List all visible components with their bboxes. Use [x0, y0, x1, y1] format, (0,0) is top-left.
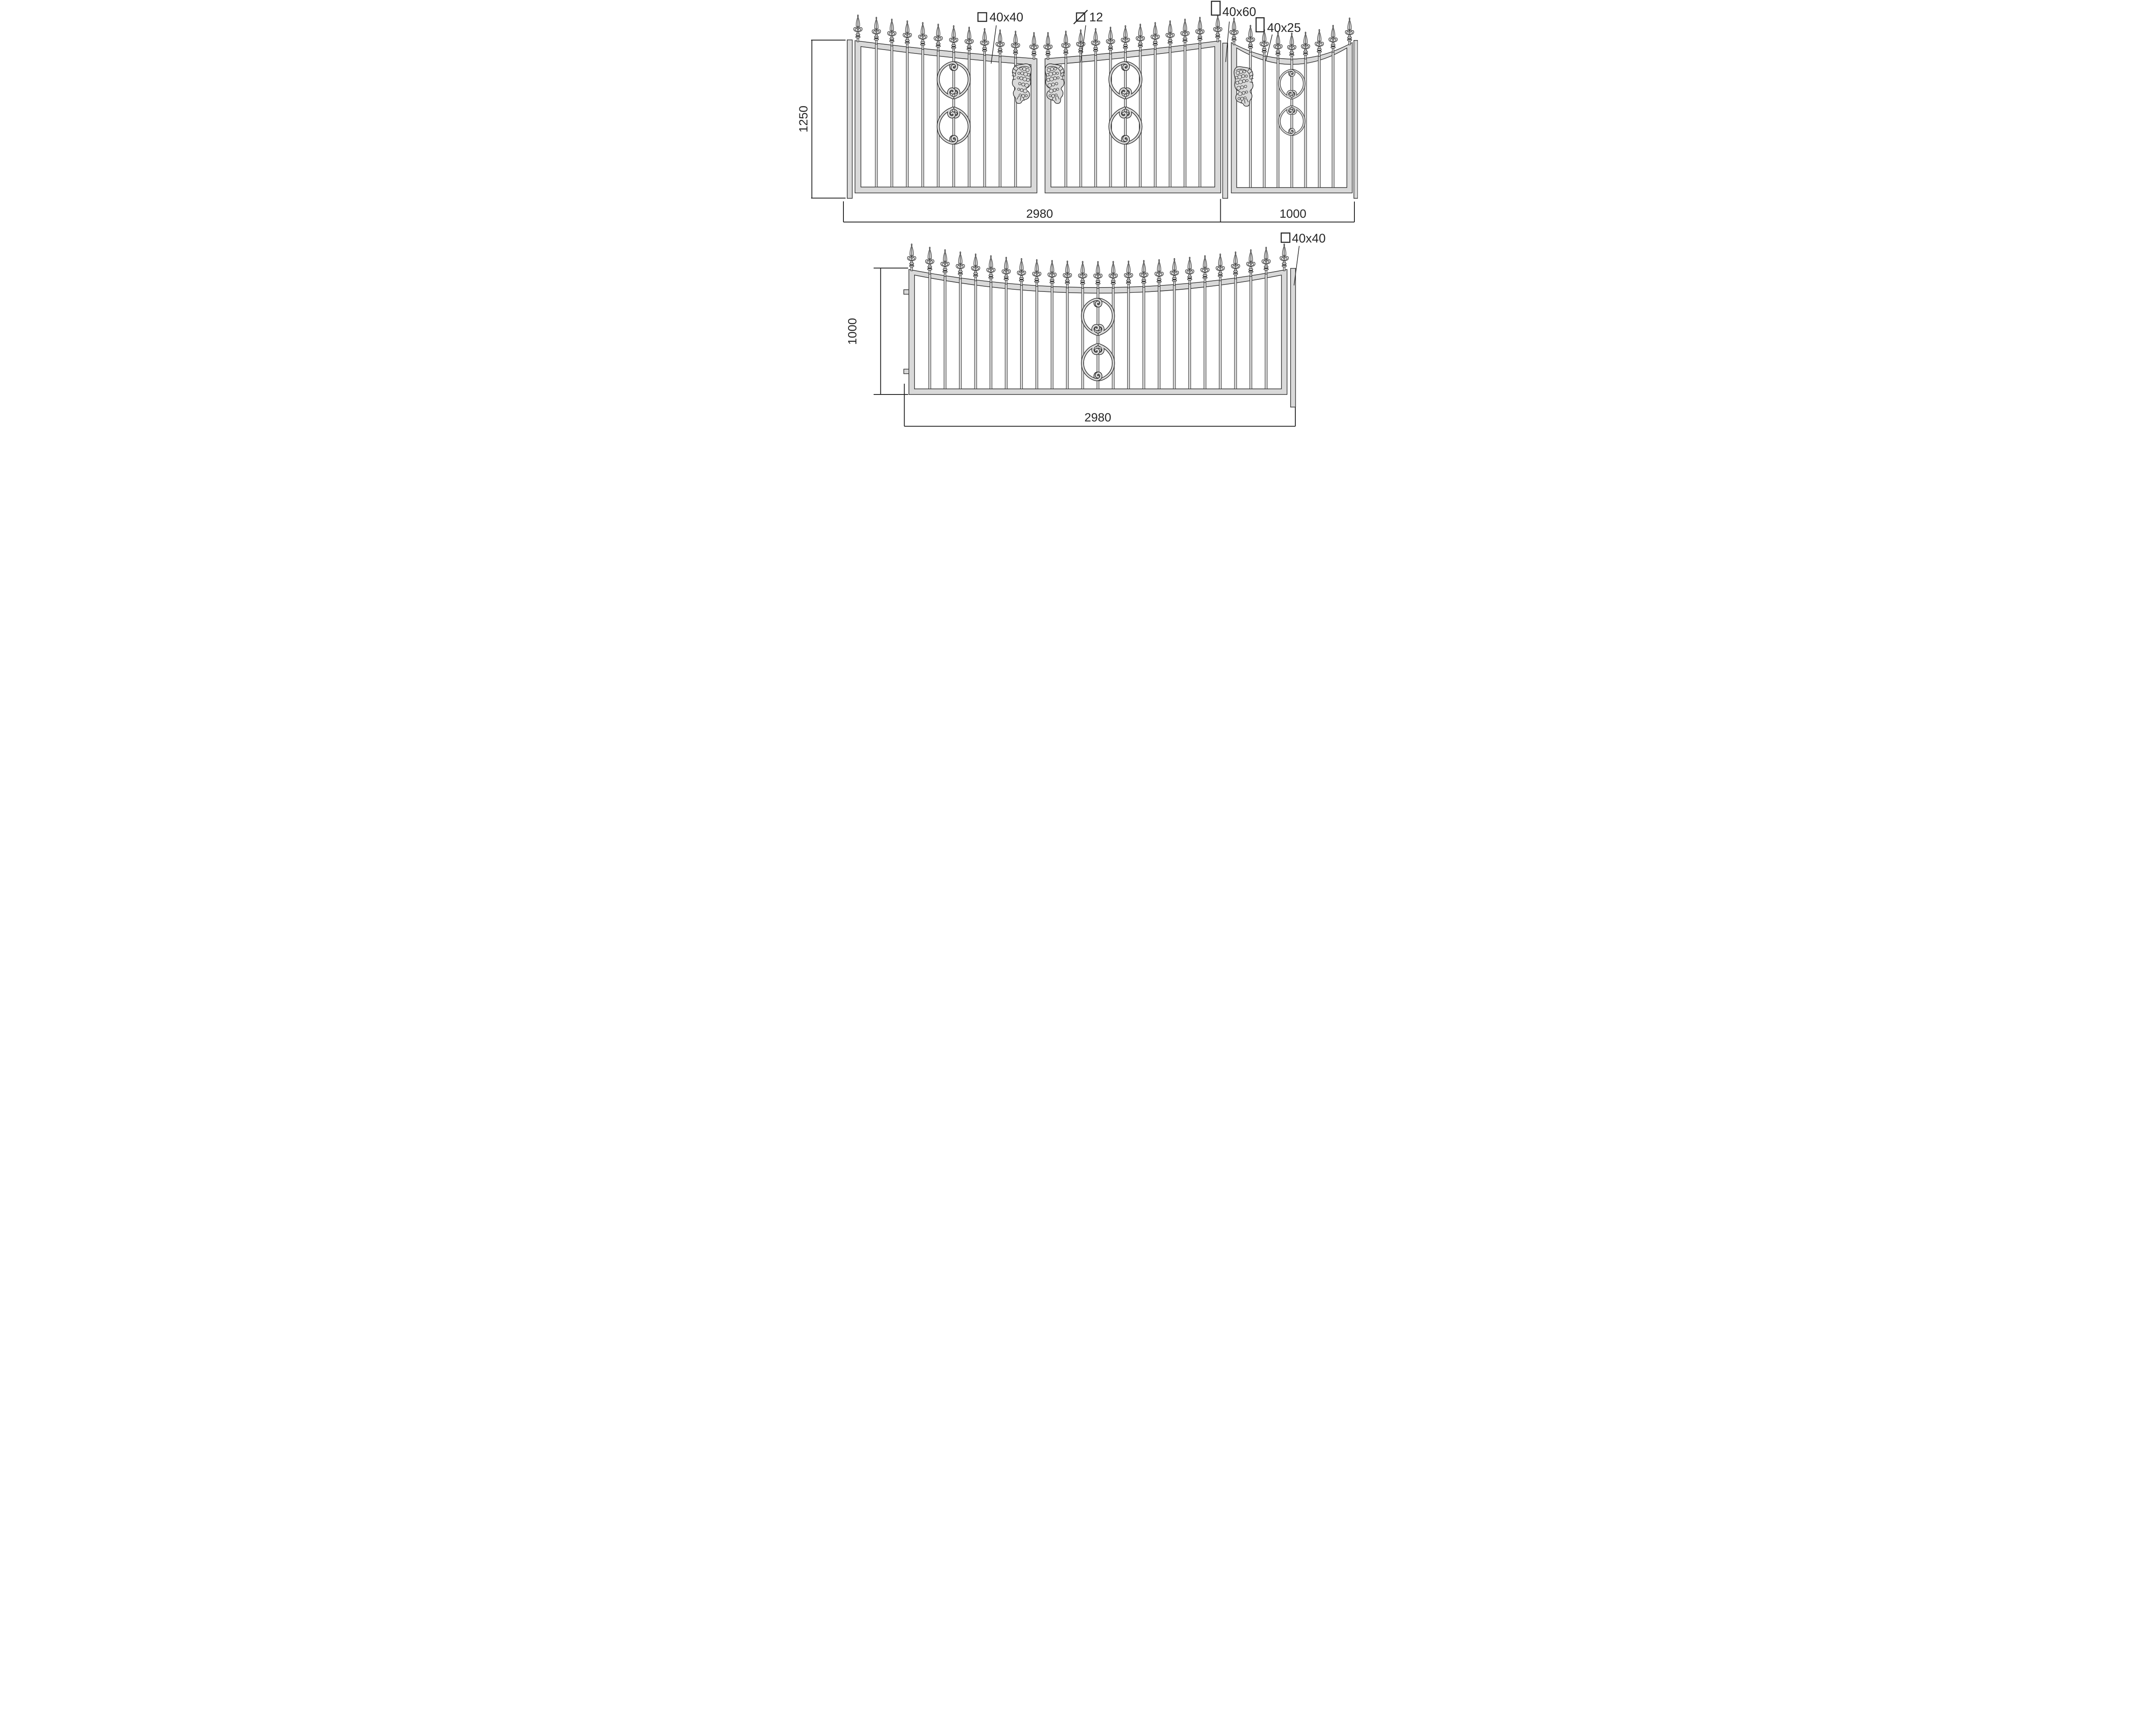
finial — [956, 252, 965, 279]
baluster — [1094, 56, 1097, 187]
finial — [1181, 19, 1189, 46]
baluster — [1265, 274, 1267, 389]
finial — [1078, 261, 1087, 288]
baluster — [1189, 284, 1191, 389]
baluster — [875, 44, 877, 187]
baluster — [1005, 284, 1007, 389]
finial — [1315, 29, 1324, 56]
finial — [941, 250, 950, 277]
finial — [925, 247, 934, 274]
baluster — [1065, 58, 1067, 187]
finial — [950, 25, 958, 53]
finial — [1044, 32, 1052, 59]
finial — [1076, 30, 1085, 57]
callout-baluster: 12 — [1089, 10, 1103, 24]
square-tube-icon — [1281, 233, 1290, 243]
baluster — [1199, 44, 1201, 187]
baluster — [1143, 287, 1145, 389]
finial — [1280, 244, 1288, 271]
callout-fence-post: 40x40 — [1292, 232, 1326, 246]
leader-fence-post — [1294, 246, 1299, 286]
finial — [1032, 260, 1041, 287]
dim-text-2980-bottom: 2980 — [1084, 411, 1111, 424]
finial — [1062, 31, 1070, 58]
annotation-layer: 40x40 12 40x60 40x25 40x40 1250 2980 100… — [798, 1, 1354, 426]
baluster — [929, 274, 931, 389]
baluster — [1204, 282, 1206, 389]
fence-post-40x40 — [1291, 269, 1296, 407]
baluster — [984, 56, 986, 187]
finial — [1155, 260, 1163, 287]
finial — [1151, 22, 1159, 50]
baluster — [1080, 57, 1082, 187]
finial — [1201, 256, 1210, 283]
finial — [1109, 261, 1118, 288]
square-tube-icon — [978, 13, 987, 22]
finial — [872, 17, 881, 44]
baluster — [1235, 279, 1237, 389]
finial — [1017, 258, 1026, 285]
finial — [1063, 261, 1072, 288]
baluster — [1173, 285, 1175, 389]
baluster — [1124, 53, 1126, 187]
baluster — [1169, 48, 1171, 187]
square-bar-icon — [1074, 10, 1087, 24]
finial — [1185, 257, 1194, 284]
finial — [1166, 21, 1175, 48]
finial — [934, 24, 943, 51]
wall-post-left — [847, 40, 852, 199]
finial — [980, 28, 989, 56]
dim-gate-height: 1250 — [798, 40, 846, 198]
finial — [854, 15, 862, 42]
finial — [1329, 25, 1338, 52]
finial — [918, 22, 927, 50]
baluster — [1219, 281, 1221, 389]
callout-wicket-frame: 40x25 — [1267, 21, 1301, 35]
finial — [1216, 254, 1225, 281]
fence-gate-technical-drawing: 40x40 12 40x60 40x25 40x40 1250 2980 100… — [798, 0, 1358, 427]
rect-tube-40x25-icon — [1256, 18, 1264, 32]
baluster — [921, 50, 924, 187]
baluster — [953, 53, 955, 187]
finial — [1301, 32, 1310, 59]
baluster — [990, 282, 992, 389]
rosette-cartouche — [1045, 64, 1065, 103]
finial — [1002, 257, 1011, 284]
baluster — [1066, 288, 1069, 389]
baluster — [1263, 56, 1265, 188]
finial — [1231, 252, 1240, 279]
finial — [1170, 258, 1179, 285]
drawing-page: 40x40 12 40x60 40x25 40x40 1250 2980 100… — [798, 0, 1358, 427]
finial — [1345, 18, 1354, 45]
finial — [1262, 247, 1270, 274]
baluster — [1081, 288, 1084, 389]
finial — [1091, 28, 1100, 56]
baluster — [1036, 286, 1038, 389]
baluster — [1051, 287, 1053, 389]
finial — [1288, 33, 1296, 60]
baluster — [1112, 288, 1114, 389]
baluster — [1158, 286, 1160, 389]
finial — [1213, 15, 1222, 42]
dim-text-1000-fence: 1000 — [846, 318, 859, 345]
baluster — [975, 281, 977, 389]
baluster — [1332, 52, 1334, 188]
finial — [1247, 250, 1255, 277]
baluster — [1250, 276, 1252, 389]
finial — [965, 27, 974, 54]
finial — [1124, 261, 1133, 288]
finial — [1196, 17, 1204, 44]
finial — [887, 19, 896, 46]
wall-post-right — [1354, 41, 1358, 198]
baluster — [1128, 288, 1130, 389]
baluster — [1318, 56, 1320, 188]
dim-fence-height: 1000 — [846, 268, 908, 394]
main-post-40x60 — [1223, 43, 1228, 198]
dim-text-2980-top: 2980 — [1026, 207, 1053, 220]
finial — [1140, 260, 1148, 288]
dim-gate-widths: 2980 1000 — [843, 199, 1354, 222]
rect-tube-40x60-icon — [1212, 1, 1220, 15]
baluster — [891, 46, 893, 187]
finial — [1094, 261, 1102, 288]
finial — [1121, 25, 1130, 53]
baluster — [999, 57, 1001, 187]
finial — [1230, 18, 1238, 45]
baluster — [1020, 285, 1022, 389]
finial — [1136, 24, 1145, 51]
callout-main-post: 40x60 — [1222, 5, 1256, 19]
finial — [1048, 260, 1056, 288]
baluster — [959, 279, 962, 389]
finial — [1011, 31, 1020, 58]
finial — [1246, 25, 1255, 52]
baluster — [1291, 60, 1293, 188]
baluster — [906, 48, 909, 187]
dim-text-1000-top: 1000 — [1279, 207, 1306, 220]
baluster — [944, 276, 946, 389]
finial — [1030, 32, 1038, 59]
finial — [987, 256, 995, 283]
finial — [1106, 27, 1115, 54]
finial — [1274, 32, 1282, 59]
baluster — [1154, 50, 1156, 187]
finial — [996, 30, 1004, 57]
finial — [971, 254, 980, 281]
gate-leaf-left-frame — [855, 41, 1037, 193]
finial — [903, 21, 912, 48]
finial — [907, 244, 916, 271]
baluster — [1184, 46, 1186, 187]
callout-gate-frame: 40x40 — [990, 10, 1023, 24]
dim-text-1250: 1250 — [798, 106, 810, 132]
